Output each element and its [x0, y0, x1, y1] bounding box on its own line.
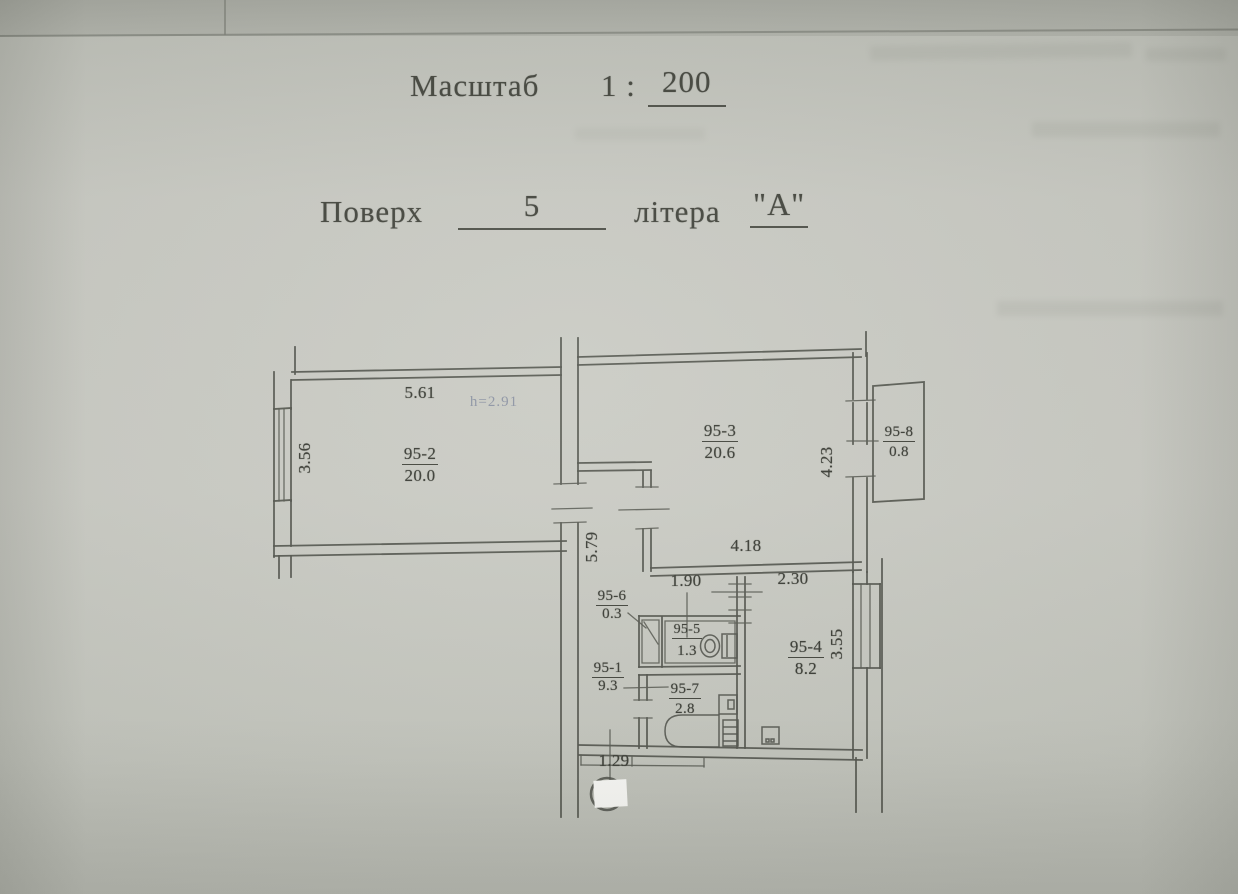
dim-room3-height: 4.23 [817, 440, 837, 484]
redaction-box [593, 779, 627, 808]
room-id-text: 95-6 [596, 588, 629, 606]
ceiling-height-note: h=2.91 [462, 394, 526, 411]
room-id-95-1: 95-1 [586, 660, 630, 677]
room-area-95-1: 9.3 [586, 678, 630, 695]
room-id-text: 95-1 [592, 660, 625, 678]
room-area-95-6: 0.3 [590, 606, 634, 623]
window-symbol [274, 408, 291, 501]
room-id-95-4: 95-4 [781, 637, 831, 657]
room-area-95-5: 1.3 [666, 643, 708, 660]
scanned-floor-plan-page: Масштаб 1 : 200 Поверх 5 літера "А" [0, 0, 1238, 894]
room-area-95-8: 0.8 [876, 444, 922, 461]
room-id-95-8: 95-8 [876, 424, 922, 441]
room-id-text: 95-8 [883, 424, 916, 442]
dim-room3-width: 4.18 [722, 536, 770, 556]
kitchen-window-symbol [853, 584, 880, 668]
dim-kitchen-width: 2.30 [770, 569, 816, 589]
room-area-95-7: 2.8 [662, 701, 708, 718]
dim-room2-depth: 3.56 [295, 436, 315, 480]
room-id-95-3: 95-3 [696, 421, 744, 441]
radiator-icon [723, 720, 738, 746]
dim-wc-width: 1.90 [664, 571, 708, 591]
room-id-text: 95-2 [402, 444, 438, 465]
bathtub-icon [665, 715, 719, 747]
room-id-95-2: 95-2 [396, 444, 444, 464]
room-id-text: 95-7 [669, 681, 702, 699]
dim-entry-width: 1.29 [592, 751, 636, 771]
room-area-95-3: 20.6 [696, 443, 744, 463]
room-id-text: 95-3 [702, 421, 738, 442]
balcony-outline [873, 382, 924, 502]
stove-icon [762, 727, 779, 744]
dim-room2-width: 5.61 [398, 383, 442, 403]
room-id-95-6: 95-6 [590, 588, 634, 605]
room-id-text: 95-4 [788, 637, 824, 658]
outer-boundary-lines [856, 559, 882, 812]
room-id-95-5: 95-5 [666, 622, 708, 638]
dim-corridor-length: 5.79 [582, 525, 602, 569]
room-id-text: 95-5 [672, 622, 703, 639]
room-area-95-4: 8.2 [781, 659, 831, 679]
room-id-95-7: 95-7 [662, 681, 708, 698]
sink-icon [719, 695, 737, 714]
room-area-95-2: 20.0 [396, 466, 444, 486]
door-swing-line [644, 622, 658, 644]
